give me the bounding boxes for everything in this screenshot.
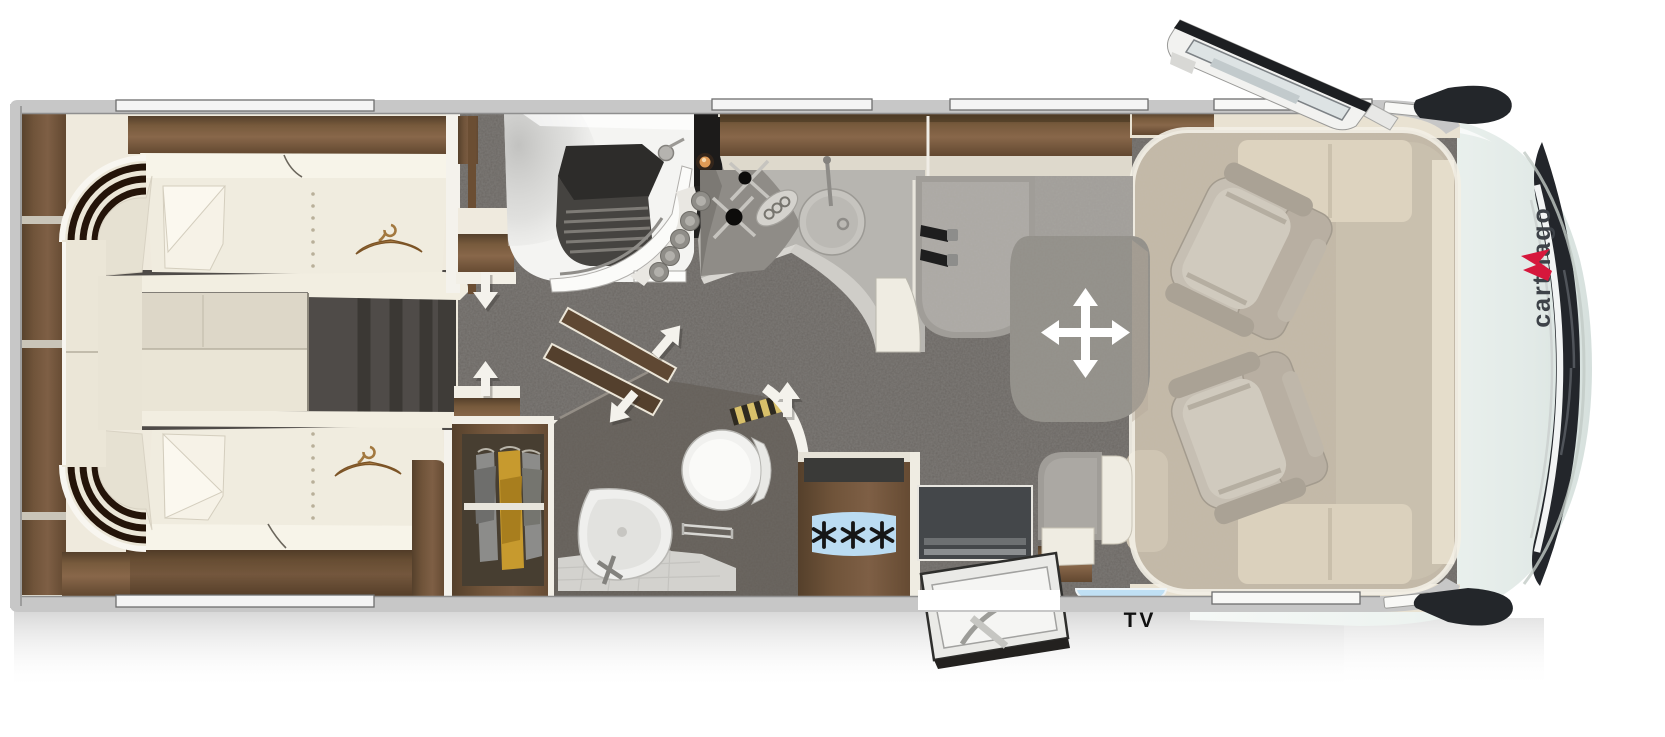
svg-text:TV: TV bbox=[1124, 609, 1157, 632]
